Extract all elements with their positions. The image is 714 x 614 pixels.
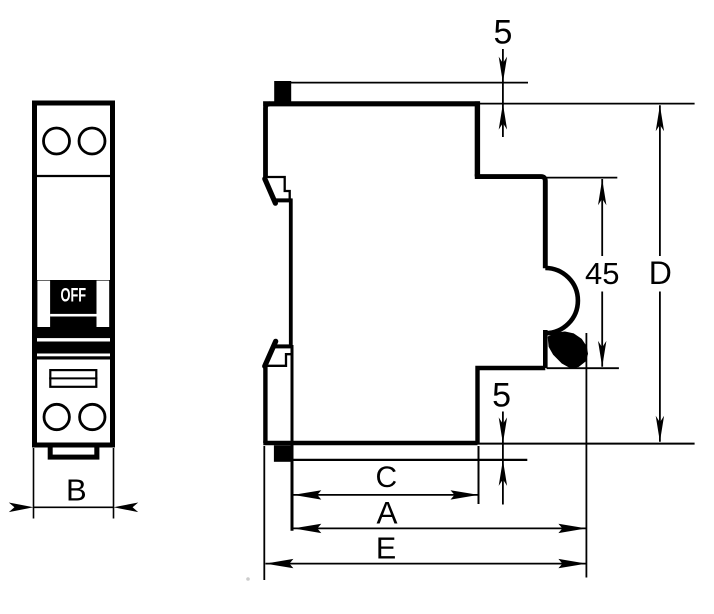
svg-text:5: 5 (494, 14, 513, 52)
svg-text:A: A (376, 495, 397, 531)
svg-text:D: D (649, 255, 672, 291)
svg-text:OFF: OFF (61, 285, 87, 306)
svg-text:E: E (376, 532, 396, 566)
svg-text:5: 5 (492, 377, 511, 415)
svg-text:45: 45 (585, 256, 619, 291)
svg-text:B: B (66, 473, 87, 508)
svg-text:C: C (375, 461, 397, 494)
